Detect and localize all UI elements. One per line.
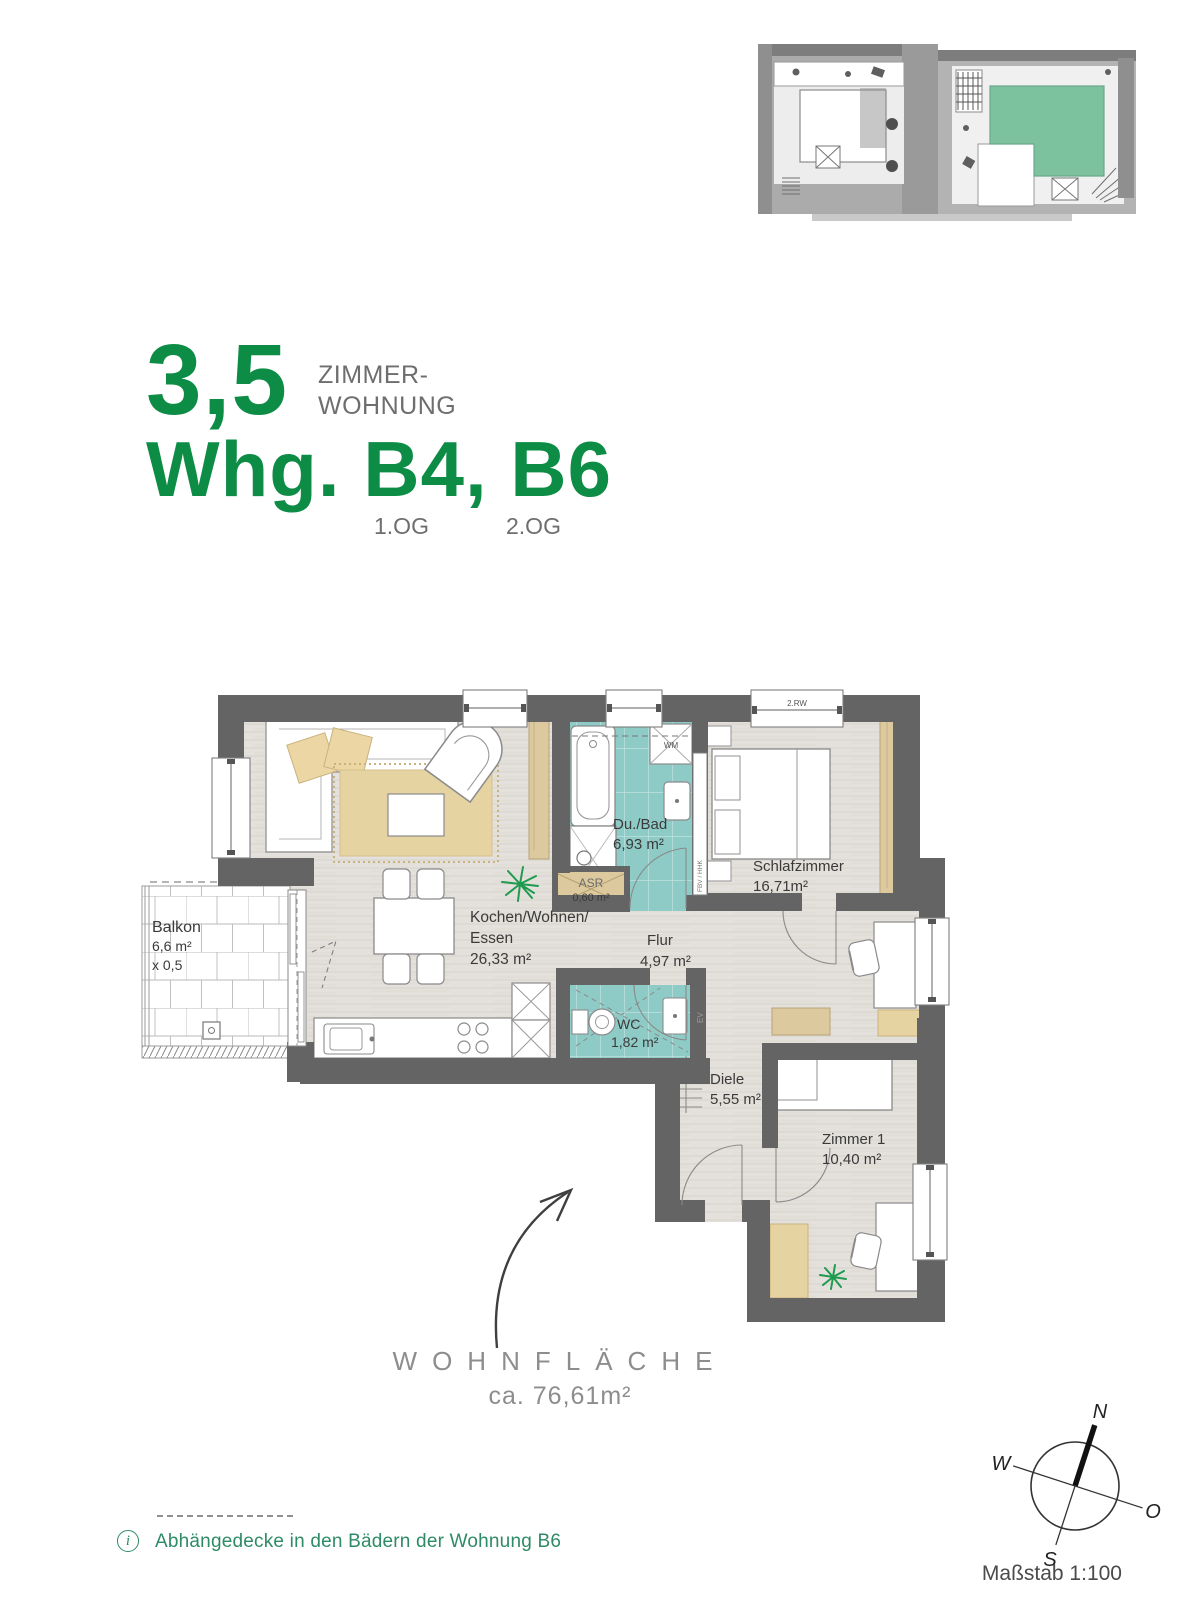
apartment-type-line1: ZIMMER- bbox=[318, 360, 456, 391]
floor-label-b6: 2.OG bbox=[506, 513, 561, 540]
small-rug bbox=[878, 1010, 920, 1036]
pillow bbox=[777, 1056, 817, 1100]
room-area-zimmer1: 10,40 m² bbox=[822, 1151, 881, 1168]
legend-dashed-line bbox=[157, 1515, 293, 1517]
floorplan-page: 3,5 ZIMMER- WOHNUNG Whg. B4, B6 1.OG 2.O… bbox=[0, 0, 1182, 1605]
window-zimmer1-right bbox=[913, 1164, 947, 1260]
floor-label-b4: 1.OG bbox=[374, 513, 429, 540]
room-label-asr: ASR bbox=[579, 876, 604, 890]
room-factor-balkon: x 0,5 bbox=[152, 957, 183, 973]
room-label-balkon: Balkon bbox=[152, 919, 201, 936]
room-label-schlafzimmer: Schlafzimmer bbox=[753, 858, 844, 875]
window-living-top bbox=[463, 690, 527, 727]
room-area-bad: 6,93 m² bbox=[613, 836, 664, 853]
room-label-diele: Diele bbox=[710, 1071, 744, 1088]
dining-chair bbox=[417, 869, 444, 899]
compass: N W O S bbox=[980, 1398, 1170, 1578]
room-label-bad: Du./Bad bbox=[613, 816, 667, 833]
pillow bbox=[715, 810, 740, 854]
room-area-flur: 4,97 m² bbox=[640, 953, 691, 970]
shaft-label: FBV / HHK bbox=[697, 860, 704, 892]
balcony-railing bbox=[142, 1046, 290, 1058]
site-plan-ground-line bbox=[812, 214, 1072, 221]
living-area-label: WOHNFLÄCHE bbox=[250, 1346, 870, 1377]
apartment-type-label: ZIMMER- WOHNUNG bbox=[318, 360, 456, 423]
dining-table bbox=[374, 898, 454, 954]
window-bath-top bbox=[606, 690, 662, 727]
balcony-sliding-door bbox=[288, 890, 306, 1046]
apartment-type-line2: WOHNUNG bbox=[318, 391, 456, 422]
room-area-asr: 0,60 m² bbox=[572, 892, 610, 904]
site-plan-thumbnail bbox=[752, 28, 1144, 226]
site-plan-right-building bbox=[938, 50, 1136, 214]
window-living-left bbox=[212, 758, 250, 858]
compass-n: N bbox=[1093, 1401, 1108, 1423]
compass-w: W bbox=[992, 1453, 1013, 1475]
window-hall-right bbox=[915, 918, 949, 1005]
tag-wm: WM bbox=[664, 741, 679, 750]
window-bedroom-top: 2.RW bbox=[751, 690, 843, 727]
pillow bbox=[715, 756, 740, 800]
balcony-drain bbox=[203, 1022, 220, 1039]
apartment-title: Whg. B4, B6 bbox=[146, 430, 612, 508]
living-area-value: ca. 76,61m² bbox=[250, 1382, 870, 1411]
dining-chair bbox=[417, 954, 444, 984]
desk bbox=[874, 922, 916, 1008]
dining-chair bbox=[383, 954, 410, 984]
room-label-wc: WC bbox=[617, 1016, 640, 1032]
rug bbox=[770, 1224, 808, 1298]
dining-chair bbox=[383, 869, 410, 899]
room-area-wohnen: 26,33 m² bbox=[470, 951, 531, 968]
compass-o: O bbox=[1145, 1501, 1161, 1523]
info-icon: i bbox=[117, 1530, 139, 1552]
room-area-diele: 5,55 m² bbox=[710, 1091, 761, 1108]
tall-cabinet bbox=[529, 713, 549, 859]
coffee-table bbox=[388, 794, 444, 836]
site-plan-left-building bbox=[758, 44, 938, 214]
installation-shaft: FBV / HHK bbox=[693, 753, 707, 895]
scale-label: Maßstab 1:100 bbox=[940, 1562, 1122, 1586]
info-note: Abhängedecke in den Bädern der Wohnung B… bbox=[155, 1531, 561, 1553]
nightstand bbox=[707, 861, 731, 881]
window-tag-2rw: 2.RW bbox=[787, 699, 807, 708]
compass-needle bbox=[1075, 1425, 1095, 1486]
tag-ev: EV bbox=[696, 1012, 705, 1023]
room-area-balkon: 6,6 m² bbox=[152, 938, 192, 954]
nightstand bbox=[707, 726, 731, 746]
room-label-zimmer1: Zimmer 1 bbox=[822, 1131, 885, 1148]
floor-plan: FBV / HHK 2.RW bbox=[130, 640, 960, 1360]
room-area-wc: 1,82 m² bbox=[611, 1034, 659, 1050]
toilet bbox=[572, 1010, 588, 1034]
room-label-flur: Flur bbox=[647, 932, 673, 949]
apartment-size: 3,5 bbox=[146, 330, 288, 430]
room-label-wohnen-1: Kochen/Wohnen/ bbox=[470, 909, 589, 926]
room-label-wohnen-2: Essen bbox=[470, 930, 513, 947]
room-area-schlafzimmer: 16,71m² bbox=[753, 878, 808, 895]
desk bbox=[876, 1203, 918, 1291]
sideboard bbox=[772, 1008, 830, 1035]
